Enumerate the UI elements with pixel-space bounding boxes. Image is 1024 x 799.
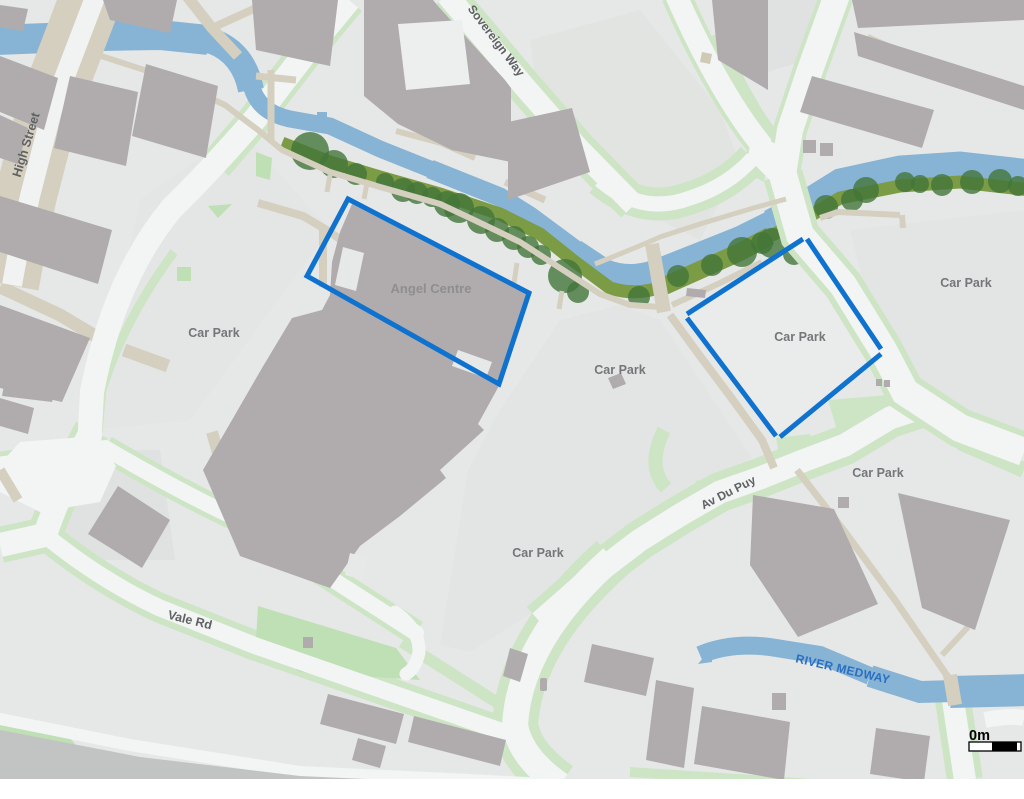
svg-text:Car Park: Car Park <box>594 363 645 377</box>
svg-text:Car Park: Car Park <box>188 326 239 340</box>
svg-text:Car Park: Car Park <box>512 546 563 560</box>
svg-text:Angel Centre: Angel Centre <box>391 281 472 296</box>
svg-text:Car Park: Car Park <box>852 466 903 480</box>
svg-text:Car Park: Car Park <box>774 330 825 344</box>
svg-text:Car Park: Car Park <box>940 276 991 290</box>
